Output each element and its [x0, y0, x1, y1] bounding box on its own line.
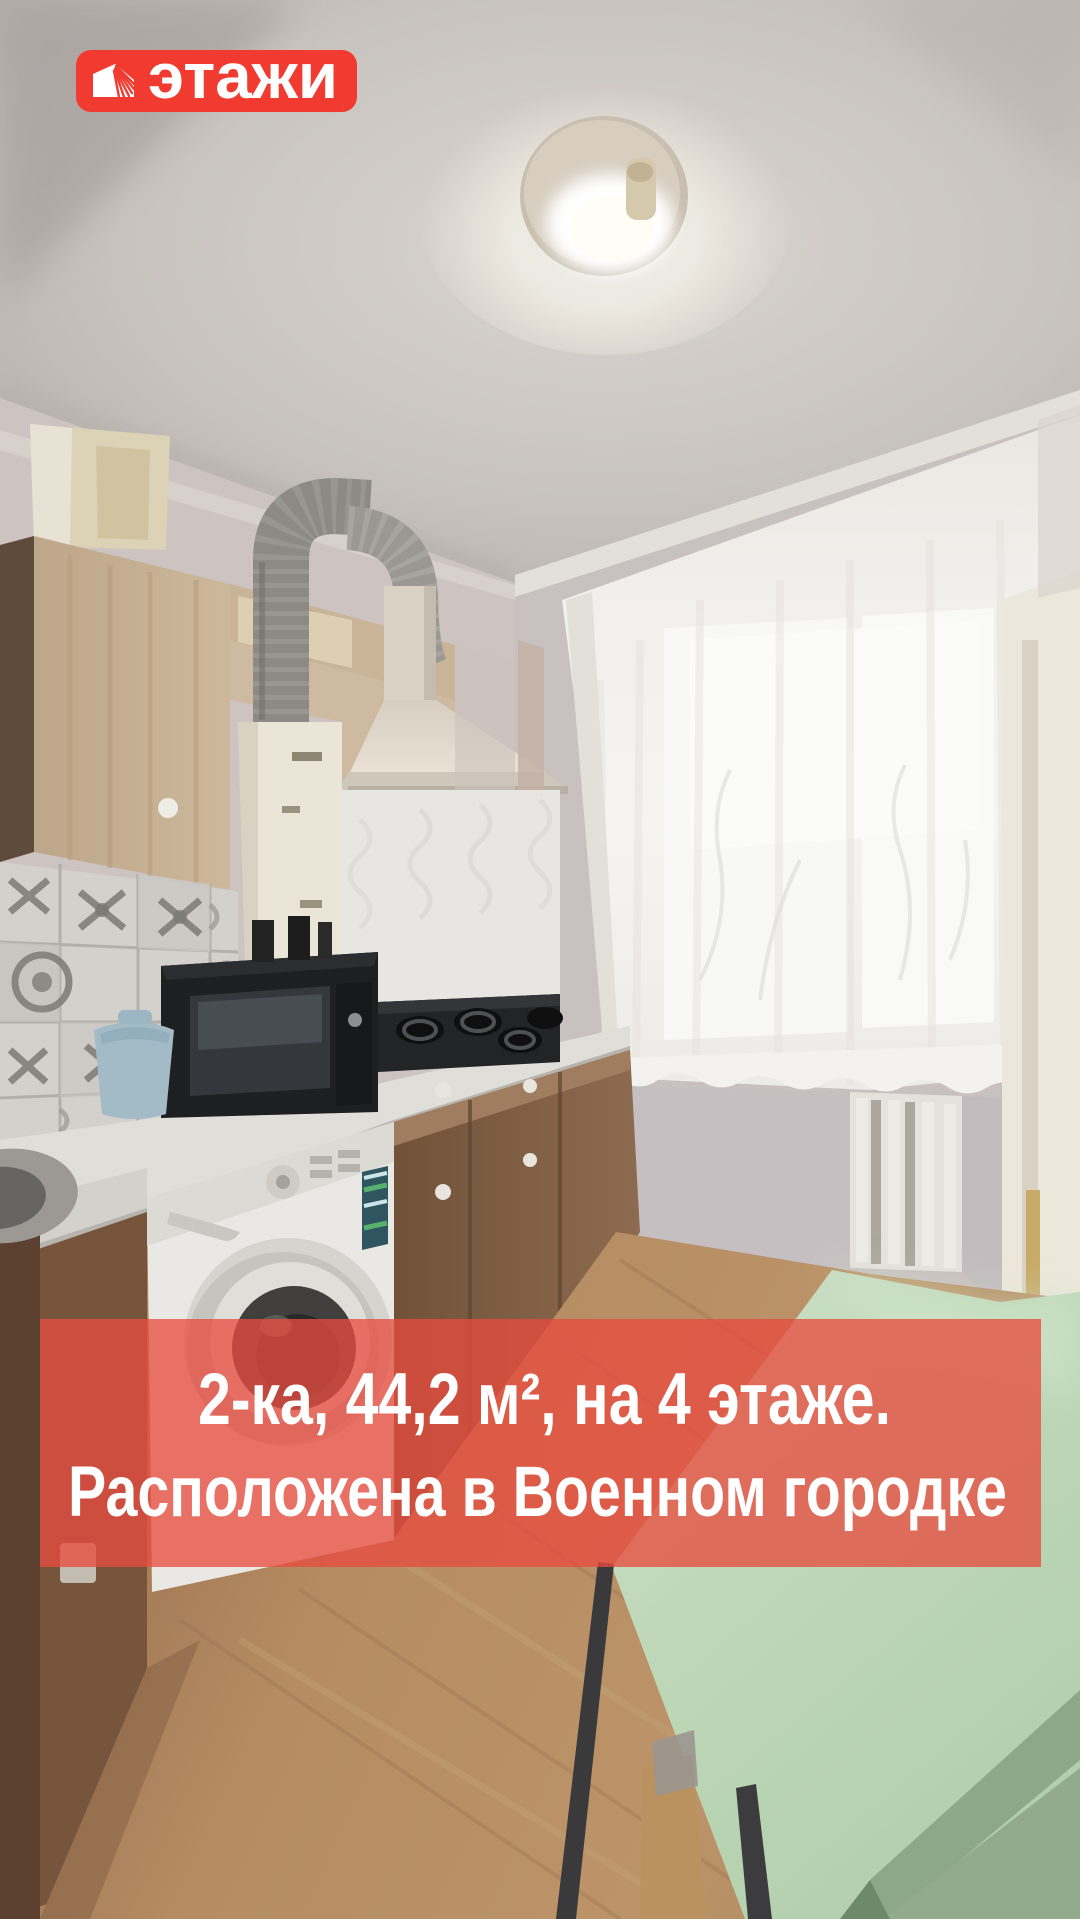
svg-text:Расположена в Военном городке: Расположена в Военном городке: [68, 1453, 1007, 1532]
svg-text:2-ка, 44,2 м², на 4 этаже.: 2-ка, 44,2 м², на 4 этаже.: [198, 1359, 891, 1440]
svg-text:этажи: этажи: [148, 40, 338, 112]
